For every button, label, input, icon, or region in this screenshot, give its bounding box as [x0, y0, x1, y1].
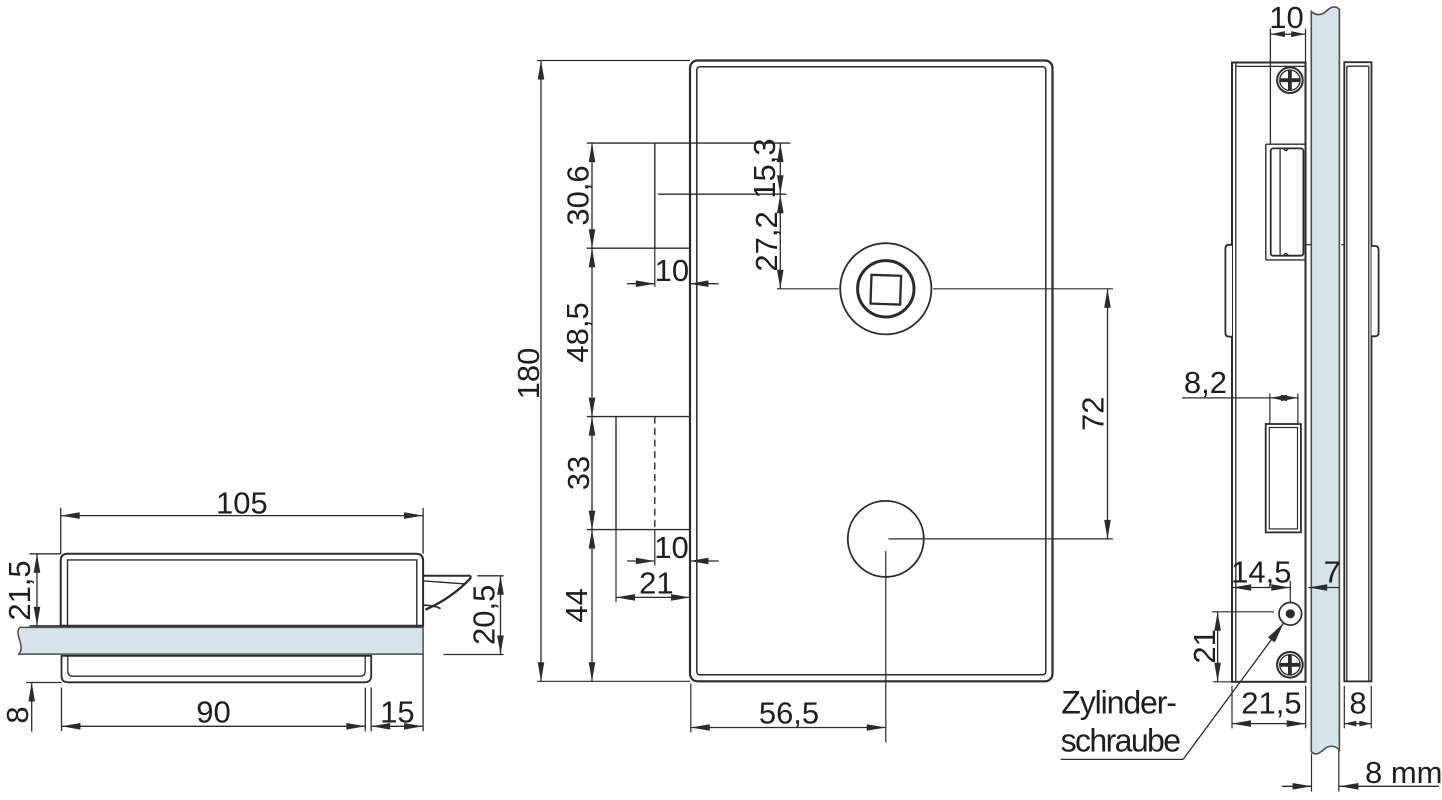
svg-text:schraube: schraube [1061, 722, 1181, 758]
svg-text:8: 8 [0, 706, 35, 723]
svg-text:180: 180 [511, 348, 546, 400]
svg-text:Zylinder-: Zylinder- [1061, 684, 1176, 720]
svg-text:105: 105 [216, 485, 268, 520]
svg-text:72: 72 [1076, 397, 1111, 431]
svg-text:48,5: 48,5 [560, 302, 595, 362]
svg-text:7: 7 [1324, 555, 1341, 590]
svg-text:21: 21 [639, 565, 673, 600]
svg-text:20,5: 20,5 [467, 585, 502, 645]
svg-text:8,2: 8,2 [1184, 365, 1227, 400]
svg-text:56,5: 56,5 [759, 696, 819, 731]
svg-text:15: 15 [380, 694, 414, 729]
svg-text:15,3: 15,3 [747, 138, 782, 198]
svg-text:10: 10 [654, 530, 688, 565]
svg-text:33: 33 [561, 456, 596, 490]
svg-text:10: 10 [655, 253, 689, 288]
svg-text:14,5: 14,5 [1231, 555, 1291, 590]
svg-text:30,6: 30,6 [561, 165, 596, 225]
svg-text:44: 44 [559, 588, 594, 622]
svg-text:10: 10 [1269, 0, 1303, 35]
svg-text:8 mm: 8 mm [1365, 755, 1442, 790]
svg-text:21: 21 [1187, 629, 1222, 663]
svg-text:27,2: 27,2 [749, 211, 784, 271]
svg-text:21,5: 21,5 [2, 560, 37, 620]
svg-text:8: 8 [1349, 686, 1366, 721]
svg-text:21,5: 21,5 [1241, 686, 1301, 721]
svg-text:90: 90 [196, 694, 230, 729]
